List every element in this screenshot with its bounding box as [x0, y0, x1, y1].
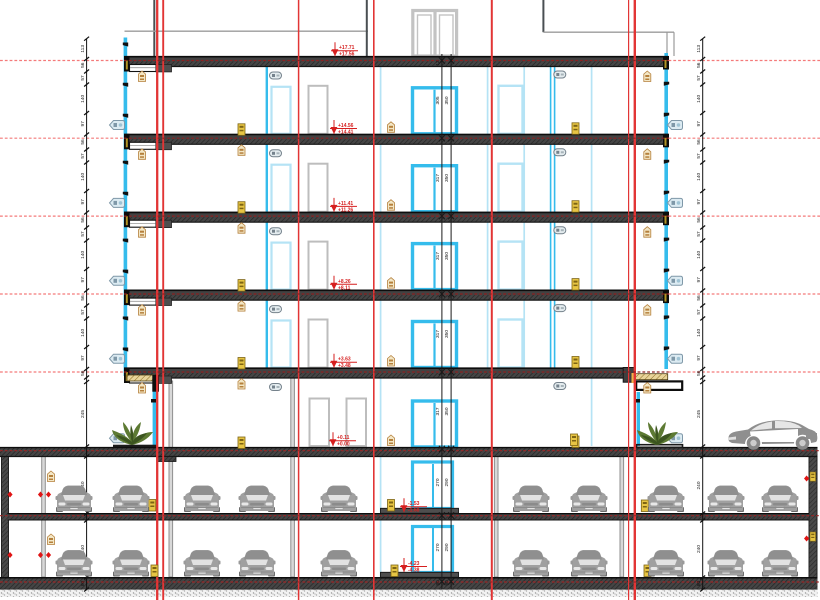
svg-text:140: 140 [696, 94, 702, 102]
svg-text:56: 56 [80, 139, 86, 145]
svg-text:245: 245 [696, 410, 702, 418]
svg-text:140: 140 [80, 250, 86, 258]
svg-text:80: 80 [80, 581, 86, 587]
svg-text:317: 317 [435, 252, 441, 260]
svg-text:270: 270 [435, 543, 441, 551]
svg-text:270: 270 [435, 478, 441, 486]
svg-text:+11.41: +11.41 [338, 201, 353, 207]
svg-text:350: 350 [444, 174, 450, 182]
svg-text:80: 80 [444, 580, 450, 586]
svg-text:+8.26: +8.26 [338, 279, 351, 285]
svg-text:350: 350 [444, 252, 450, 260]
svg-text:-1.53: -1.53 [408, 501, 420, 507]
svg-text:56: 56 [80, 295, 86, 301]
svg-text:290: 290 [444, 478, 450, 486]
svg-text:56: 56 [80, 217, 86, 223]
svg-text:97: 97 [696, 277, 702, 283]
svg-text:97: 97 [80, 199, 86, 205]
svg-text:56: 56 [80, 370, 86, 376]
svg-text:97: 97 [696, 121, 702, 127]
svg-text:56: 56 [696, 62, 702, 68]
svg-text:245: 245 [80, 410, 86, 418]
svg-text:140: 140 [80, 94, 86, 102]
svg-text:57: 57 [696, 75, 702, 81]
svg-text:57: 57 [80, 153, 86, 159]
svg-text:-4.23: -4.23 [408, 561, 420, 567]
svg-text:97: 97 [80, 277, 86, 283]
svg-text:97: 97 [80, 121, 86, 127]
svg-text:+0.00: +0.00 [337, 442, 350, 448]
svg-text:+11.26: +11.26 [338, 207, 353, 213]
svg-text:57: 57 [80, 309, 86, 315]
svg-text:56: 56 [80, 62, 86, 68]
svg-text:+17.56: +17.56 [339, 52, 355, 58]
svg-text:-1.68: -1.68 [408, 508, 420, 514]
svg-text:+3.48: +3.48 [338, 363, 351, 369]
svg-text:56: 56 [696, 370, 702, 376]
svg-text:240: 240 [696, 545, 702, 553]
svg-text:140: 140 [80, 172, 86, 180]
svg-text:-4.38: -4.38 [408, 568, 420, 574]
svg-text:140: 140 [696, 172, 702, 180]
svg-text:317: 317 [435, 407, 441, 415]
svg-text:80: 80 [696, 581, 702, 587]
svg-text:57: 57 [696, 231, 702, 237]
svg-text:+8.11: +8.11 [338, 285, 351, 291]
svg-text:80: 80 [435, 580, 441, 586]
svg-text:56: 56 [696, 217, 702, 223]
svg-text:113: 113 [696, 45, 702, 53]
svg-text:13: 13 [435, 60, 441, 66]
svg-text:97: 97 [696, 199, 702, 205]
svg-text:+14.41: +14.41 [338, 130, 354, 136]
svg-text:+14.56: +14.56 [338, 123, 354, 129]
svg-text:140: 140 [696, 250, 702, 258]
svg-text:+3.63: +3.63 [338, 357, 351, 363]
svg-text:56: 56 [696, 139, 702, 145]
svg-text:113: 113 [80, 45, 86, 53]
svg-text:317: 317 [435, 330, 441, 338]
svg-text:290: 290 [444, 543, 450, 551]
svg-text:57: 57 [80, 231, 86, 237]
svg-text:57: 57 [696, 153, 702, 159]
svg-text:97: 97 [80, 355, 86, 361]
svg-text:97: 97 [696, 355, 702, 361]
svg-text:140: 140 [80, 328, 86, 336]
svg-text:305: 305 [435, 96, 441, 104]
svg-text:+17.71: +17.71 [339, 45, 355, 51]
svg-text:350: 350 [444, 407, 450, 415]
svg-text:57: 57 [696, 309, 702, 315]
svg-text:140: 140 [696, 328, 702, 336]
svg-text:317: 317 [435, 174, 441, 182]
svg-text:57: 57 [80, 75, 86, 81]
svg-text:+0.11: +0.11 [337, 435, 350, 441]
svg-text:350: 350 [444, 96, 450, 104]
svg-text:350: 350 [444, 330, 450, 338]
svg-text:240: 240 [696, 481, 702, 489]
svg-text:56: 56 [696, 295, 702, 301]
